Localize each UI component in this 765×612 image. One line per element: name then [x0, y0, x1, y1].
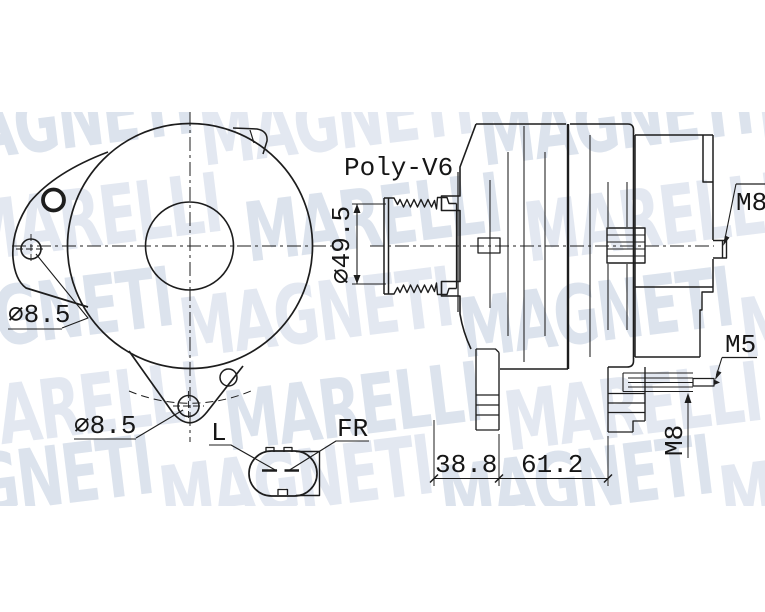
labels: Poly-V6 ⌀49.5 ⌀8.5 ⌀8.5 L FR M8 M5 M8 38… [8, 153, 765, 480]
pin-l-label: L [211, 418, 227, 448]
pin-fr-label: FR [337, 414, 368, 444]
pulley-top-grooves [384, 198, 457, 210]
m8-leader [725, 184, 737, 241]
m5-leader-arrow [715, 371, 722, 381]
front-fin-lines [490, 126, 545, 362]
hole-crosshair [16, 234, 46, 264]
m5-screw-tip [714, 380, 720, 386]
hole-crosshair-bottom [173, 391, 204, 421]
front-mounting-lug [476, 349, 499, 430]
leader-pin-fr [288, 441, 369, 471]
bplus-terminal [623, 373, 693, 392]
mounting-hole-ring [43, 190, 64, 211]
dim-front-label: 38.8 [435, 450, 497, 480]
alternator-technical-drawing: MAGNETIMAGNETIMAGNETIMAGNETIMARELLIMAREL… [0, 0, 765, 612]
terminal-screw-label: M5 [725, 330, 756, 360]
pulley-bottom-grooves [384, 283, 457, 295]
pulley-flange-edges [384, 198, 389, 294]
rear-stud-label: M8 [736, 188, 765, 218]
pulley-type-label: Poly-V6 [344, 153, 453, 183]
m5-screw [693, 379, 714, 387]
connector-key [278, 490, 288, 496]
pulley-diameter-label: ⌀49.5 [327, 206, 357, 284]
connector-detail [209, 441, 369, 496]
front-view [8, 112, 332, 442]
drawing-svg: Poly-V6 ⌀49.5 ⌀8.5 ⌀8.5 L FR M8 M5 M8 38… [0, 0, 765, 612]
rear-mounting-lug [608, 367, 645, 432]
bplus-stud-label: M8 [660, 425, 690, 456]
dim-rear-label: 61.2 [521, 450, 583, 480]
bottom-bracket [129, 351, 243, 423]
leader-pin-l [209, 445, 277, 471]
front-hole-bottom-label: ⌀8.5 [74, 411, 136, 441]
front-hole-top-label: ⌀8.5 [8, 300, 70, 330]
rear-bracket-lower [635, 287, 713, 357]
m8-bottom-arrow [685, 393, 692, 403]
